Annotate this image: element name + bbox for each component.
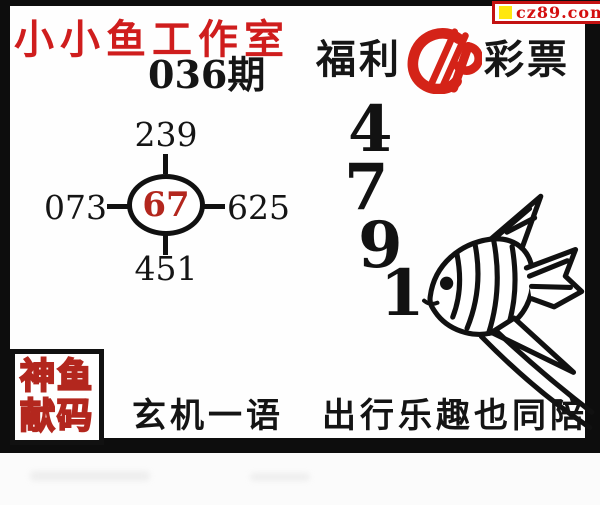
fish-eye <box>440 277 453 290</box>
site-badge-label: cz89.com <box>516 5 600 21</box>
watermark-smudge <box>250 473 310 481</box>
welfare-lottery-brand: 福利 彩票 <box>316 24 570 96</box>
lottery-tip-graphic: 小小鱼工作室 036期 福利 彩票 cz89.com 239 073 67 62… <box>0 0 600 505</box>
diagram-value-left: 073 <box>44 191 106 224</box>
bottom-strip <box>0 453 600 505</box>
mystery-phrase: 玄机一语 出行乐趣也同陪 <box>132 398 588 435</box>
site-badge[interactable]: cz89.com <box>492 1 600 24</box>
diagram-connector-top <box>163 154 168 174</box>
welfare-lottery-logo-icon <box>404 26 482 94</box>
stamp-line-2: 献码 <box>20 397 94 437</box>
brand-suffix: 彩票 <box>484 40 570 80</box>
yellow-square-icon <box>499 6 512 19</box>
stamp-line-1: 神鱼 <box>20 357 94 397</box>
issue-number: 036期 <box>148 56 265 94</box>
diagram-value-bottom: 451 <box>130 252 202 285</box>
seal-stamp: 神鱼 献码 <box>10 349 104 445</box>
brand-prefix: 福利 <box>316 40 402 80</box>
diagram-value-right: 625 <box>227 191 290 224</box>
watermark-smudge <box>30 471 150 481</box>
diagram-connector-left <box>107 204 128 209</box>
diagram-center-value: 67 <box>142 188 189 222</box>
diagram-center-node: 67 <box>127 174 205 236</box>
prediction-digit-4: 1 <box>380 262 425 326</box>
diagram-value-top: 239 <box>130 118 202 151</box>
diagram-connector-right <box>204 204 225 209</box>
